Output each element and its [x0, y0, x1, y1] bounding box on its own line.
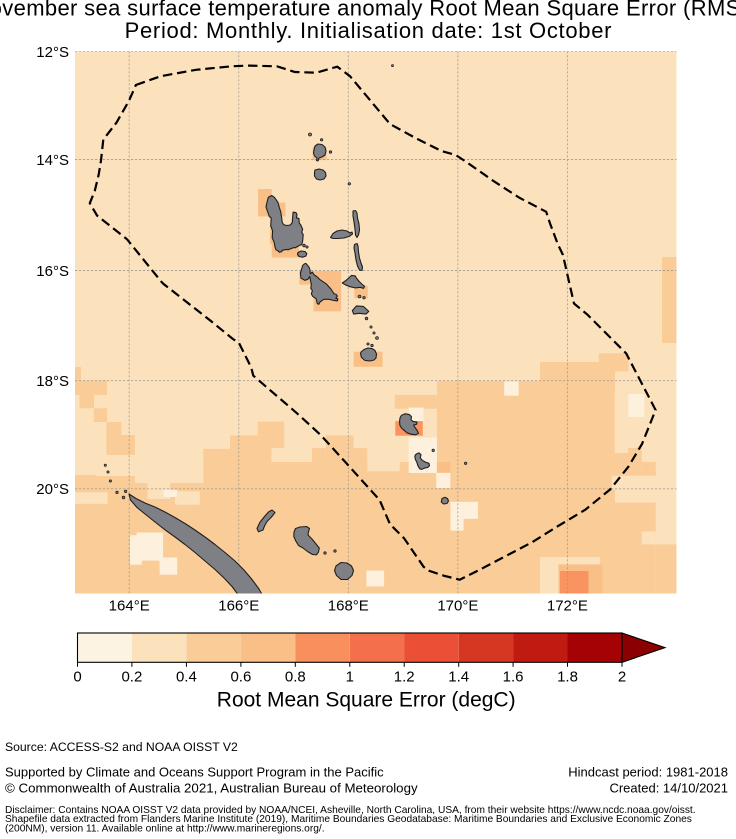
- svg-text:Source: ACCESS-S2 and NOAA OIS: Source: ACCESS-S2 and NOAA OISST V2: [5, 740, 238, 754]
- svg-text:18°S: 18°S: [36, 373, 69, 390]
- svg-text:1.8: 1.8: [557, 669, 578, 686]
- svg-text:0: 0: [73, 669, 81, 686]
- svg-text:1.6: 1.6: [503, 669, 524, 686]
- svg-text:0.2: 0.2: [121, 669, 142, 686]
- svg-text:14°S: 14°S: [36, 152, 69, 169]
- svg-text:0.6: 0.6: [230, 669, 251, 686]
- svg-text:20°S: 20°S: [36, 481, 69, 498]
- svg-text:0.4: 0.4: [176, 669, 197, 686]
- svg-text:12°S: 12°S: [36, 44, 69, 61]
- svg-text:168°E: 168°E: [328, 597, 369, 614]
- svg-text:Root Mean Square Error (degC): Root Mean Square Error (degC): [217, 689, 516, 712]
- svg-text:Created: 14/10/2021: Created: 14/10/2021: [609, 781, 728, 796]
- svg-text:16°S: 16°S: [36, 263, 69, 280]
- svg-text:Hindcast period: 1981-2018: Hindcast period: 1981-2018: [568, 765, 728, 780]
- svg-text:Period: Monthly. Initialisatio: Period: Monthly. Initialisation date: 1s…: [125, 18, 613, 43]
- svg-text:1.4: 1.4: [448, 669, 469, 686]
- svg-text:1: 1: [346, 669, 354, 686]
- svg-text:0.8: 0.8: [285, 669, 306, 686]
- svg-text:2: 2: [618, 669, 626, 686]
- svg-text:© Commonwealth of Australia 20: © Commonwealth of Australia 2021, Austra…: [5, 781, 418, 796]
- svg-text:Supported by Climate and Ocean: Supported by Climate and Oceans Support …: [5, 765, 384, 780]
- svg-text:172°E: 172°E: [547, 597, 588, 614]
- svg-text:1.2: 1.2: [394, 669, 415, 686]
- svg-text:(200NM), version 11. Available: (200NM), version 11. Available online at…: [5, 823, 325, 834]
- svg-text:166°E: 166°E: [218, 597, 259, 614]
- svg-text:170°E: 170°E: [437, 597, 478, 614]
- svg-text:164°E: 164°E: [109, 597, 150, 614]
